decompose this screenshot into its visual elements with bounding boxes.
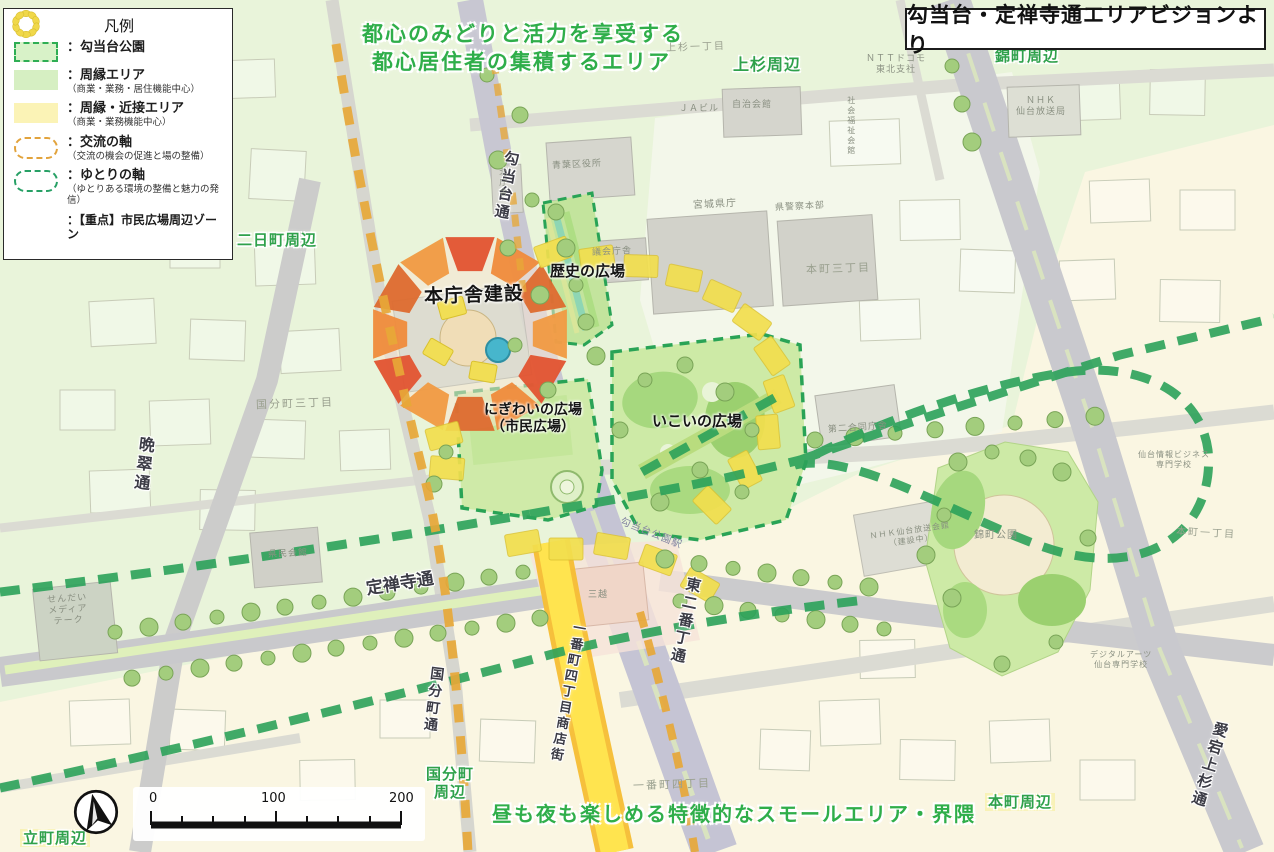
legend-item-relief-axis: ：ゆとりの軸 （ゆとりある環境の整備と魅力の発信） bbox=[14, 169, 224, 207]
fringe-area-swatch bbox=[14, 70, 58, 90]
adjacent-area-swatch bbox=[14, 103, 58, 123]
legend-item-fringe-area: ：周縁エリア （商業・業務・居住機能中心） bbox=[14, 69, 224, 95]
north-arrow-icon bbox=[72, 788, 120, 836]
exchange-axis-swatch bbox=[14, 137, 58, 159]
scale-bar: 0 100 200 bbox=[133, 787, 425, 841]
legend-item-exchange-axis: ：交流の軸 （交流の機会の促進と場の整備） bbox=[14, 136, 224, 162]
map-title-box: 勾当台・定禅寺通エリアビジョンより bbox=[905, 8, 1266, 50]
legend-item-kotodai-park: ：勾当台公園 bbox=[14, 41, 224, 62]
area-vision-map: 都心のみどりと活力を享受する都心居住者の集積するエリア昼も夜も楽しめる特徴的なス… bbox=[0, 0, 1274, 852]
scale-bar-graphic bbox=[133, 787, 425, 841]
park-swatch bbox=[14, 42, 58, 62]
compass bbox=[72, 788, 120, 836]
legend-item-adjacent-area: ：周縁・近接エリア （商業・業務機能中心） bbox=[14, 102, 224, 128]
legend-item-priority-zone: ：【重点】市民広場周辺ゾーン bbox=[14, 214, 224, 242]
legend-panel: 凡例 ：勾当台公園 ：周縁エリア （商業・業務・居住機能中心） ：周縁・近接エリ… bbox=[3, 8, 233, 260]
relief-axis-swatch bbox=[14, 170, 58, 192]
map-title: 勾当台・定禅寺通エリアビジョンより bbox=[907, 0, 1264, 59]
